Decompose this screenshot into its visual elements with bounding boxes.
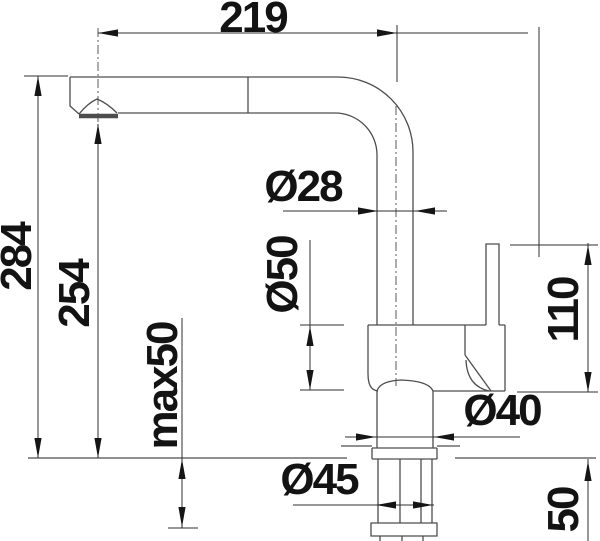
- dim-max-deck-thickness-label: max50: [141, 322, 185, 449]
- dim-overall-height-label: 284: [0, 223, 39, 290]
- dim-riser-diameter-label: Ø28: [264, 165, 341, 209]
- faucet-dimension-drawing: 219 Ø28 Ø40 Ø45 284 254 max50 Ø50 110 50: [0, 0, 600, 541]
- dim-reach-label: 219: [219, 0, 286, 40]
- dim-spout-height-label: 254: [53, 260, 97, 327]
- dim-base-diameter-label: Ø40: [463, 389, 540, 433]
- dim-handle-height-label: 110: [542, 278, 586, 343]
- dim-hole-diameter-label: Ø45: [280, 458, 357, 502]
- dimension-arrows: [34, 29, 591, 527]
- dim-body-diameter-label: Ø50: [261, 236, 305, 313]
- dim-deck-thickness-label: 50: [542, 488, 586, 533]
